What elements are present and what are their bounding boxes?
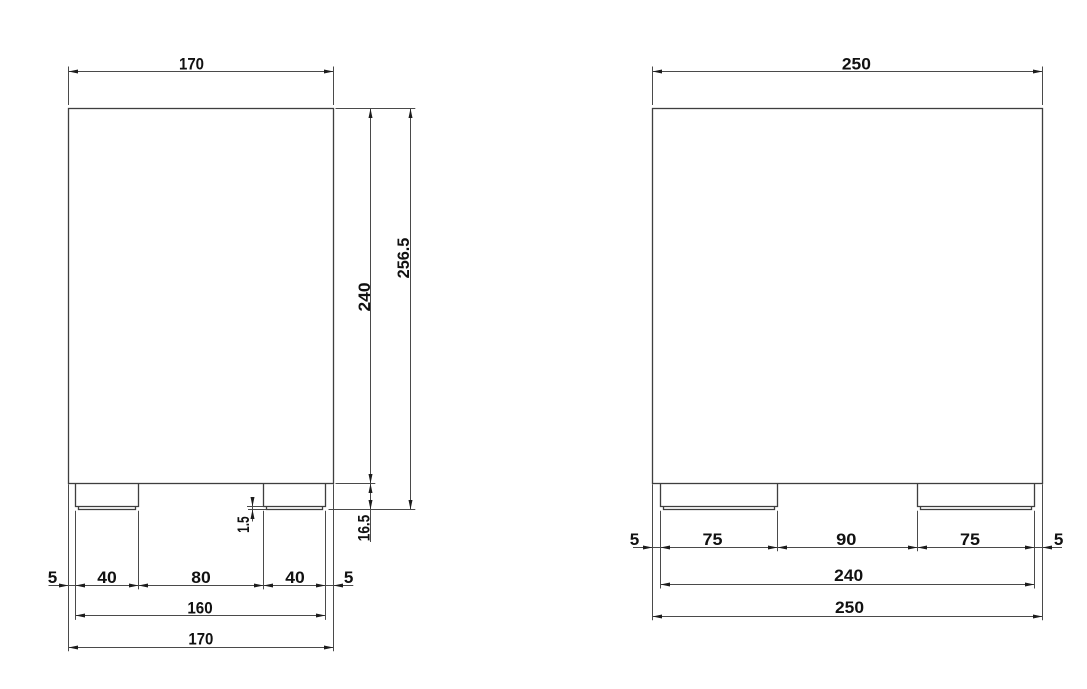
svg-text:40: 40	[97, 568, 117, 587]
svg-text:1.5: 1.5	[234, 516, 253, 533]
svg-text:75: 75	[703, 530, 723, 549]
svg-text:5: 5	[1054, 530, 1064, 549]
svg-text:240: 240	[355, 283, 374, 312]
svg-text:240: 240	[834, 566, 863, 585]
svg-text:5: 5	[344, 568, 354, 587]
svg-text:75: 75	[960, 530, 980, 549]
svg-text:16.5: 16.5	[354, 515, 373, 542]
svg-text:5: 5	[630, 530, 640, 549]
svg-text:90: 90	[836, 530, 856, 549]
svg-text:170: 170	[179, 54, 204, 73]
svg-text:160: 160	[187, 598, 212, 617]
svg-text:80: 80	[191, 568, 211, 587]
svg-text:5: 5	[48, 568, 58, 587]
svg-text:170: 170	[188, 630, 213, 649]
svg-text:250: 250	[835, 598, 864, 617]
svg-text:250: 250	[842, 54, 871, 73]
svg-text:40: 40	[285, 568, 305, 587]
svg-text:256.5: 256.5	[394, 238, 413, 279]
